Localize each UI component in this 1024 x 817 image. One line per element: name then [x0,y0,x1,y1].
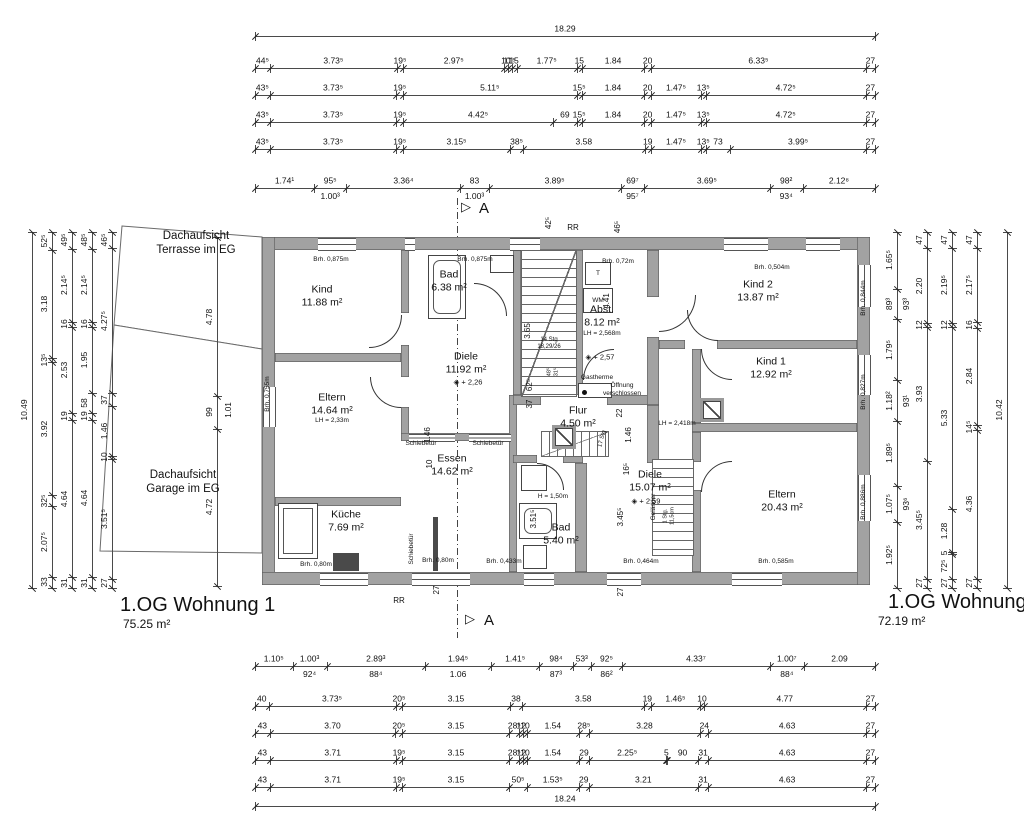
sill-height-note: Brh. 0,80m [300,561,332,569]
dim-label: 3.58 [575,695,592,704]
dim-label: 4.36 [965,496,974,513]
sill-height-note: Brh. 0,844m [860,280,868,315]
dim-label: 1.47⁵ [666,84,686,93]
dim-sub-label: 93³ [902,298,911,310]
dim-label: 3.15⁵ [447,138,467,147]
dim-label: 73 [713,138,722,147]
room-kueche: Küche 7.69 m² [328,508,364,533]
dim-label: 1.84 [605,111,622,120]
dim-label: 2.25⁵ [617,749,637,758]
dim-label: 4.77 [776,695,793,704]
dim-label: 10 [697,695,706,704]
dim-label: 3.15 [448,776,465,785]
dim-label: 1.41⁵ [505,655,525,664]
dim-note: 42⁵ [544,217,554,229]
dim-note: 1.46 [624,427,634,443]
clear-height-note: LH = 2,568m [583,330,620,338]
dim-label: 43 [258,776,267,785]
sill-height-note: Brh. 0,80m [422,557,454,565]
dim-label: 1.54 [545,722,562,731]
dim-label: 95⁵ [324,177,337,186]
dim-label: 4.64 [80,490,89,507]
dim-sub-label: 95⁷ [626,192,639,201]
dim-label: 4.63 [779,722,796,731]
dim-label: 72⁵ [940,560,949,573]
dim-label: 27 [866,749,875,758]
clear-height-note: LH = 2,418m [658,420,695,428]
window [320,573,368,586]
dim-label: 1.95 [80,352,89,369]
dim-note: 37 [525,400,535,409]
fixture-box [490,255,514,273]
dim-label: 27 [940,579,949,588]
dim-label: 43⁵ [256,138,269,147]
kitchen-sink-inner [283,508,313,554]
dim-label: 2.14⁵ [60,275,69,295]
dim-label: 3.18 [40,295,49,312]
dim-label: 15 [575,57,584,66]
rr-label-bottom: RR [393,596,405,606]
wall [717,340,857,349]
dim-label: 16 [965,320,974,329]
window [318,238,356,251]
dim-label: 5.33 [940,410,949,427]
dim-label: 98² [780,177,792,186]
dim-label: 3.71 [324,749,341,758]
dim-label: 27 [866,57,875,66]
railing-label: Geländer [650,494,658,521]
window [524,573,554,586]
dim-label: 31 [80,578,89,587]
dim-label: 33 [40,578,49,587]
dim-label: 27 [866,695,875,704]
dim-label: 1.28 [940,522,949,539]
room-eltern2: Eltern 20.43 m² [761,488,802,513]
dim-note: 31⁵ [554,368,561,376]
dim-chain-line [112,232,113,588]
dim-label: 20 [643,84,652,93]
dim-label: 27 [866,722,875,731]
dim-label: 44⁵ [256,57,269,66]
dim-chain-line [32,232,33,588]
dim-label: 40 [257,695,266,704]
door-arc [701,461,732,492]
dim-label: 10.49 [20,399,29,420]
dim-chain-line [52,232,53,588]
dim-chain-line [255,806,875,807]
dim-label: 32⁵ [40,494,49,507]
dim-label: 1.54 [545,749,562,758]
wall [692,432,701,462]
garage-outline [100,325,262,553]
wall [659,340,685,349]
wall [647,250,659,297]
dim-label: 1.10⁵ [264,655,284,664]
shaft-symbol-inner [555,428,573,446]
dim-label: 3.69⁵ [697,177,717,186]
wall [647,337,659,405]
dim-label: 10.42 [995,399,1004,420]
dim-sub-label: 86² [600,670,612,679]
dim-chain-line [255,706,875,707]
dim-label: 1.89⁵ [885,443,894,463]
dim-label: 10 [100,453,109,462]
dim-label: 4.63 [779,749,796,758]
dim-label: 1.18² [885,391,894,410]
dim-note: 62⁵ [525,379,535,391]
room-kind1: Kind 1 12.92 m² [750,355,791,380]
dim-label: 27 [866,111,875,120]
section-triangle-bottom: ▷ [465,611,475,627]
dim-label: 2.84 [965,368,974,385]
dim-sub-label: 1.06 [450,670,467,679]
dim-label: 3.99⁵ [788,138,808,147]
dim-label: 27 [965,579,974,588]
dim-note: 27 [432,586,442,595]
dim-label: 3.51⁵ [100,509,109,529]
dim-label: 19⁵ [394,57,407,66]
dim-chain-line [255,188,875,189]
dim-label: 16 [60,320,69,329]
window [732,573,782,586]
dim-label: 4.78 [205,308,214,325]
dim-label: 50⁵ [512,776,525,785]
terrace-label: Dachaufsicht Terrasse im EG [156,230,235,258]
dim-label: 27 [915,579,924,588]
dim-chain-line [72,232,73,588]
dim-label: 1.53⁵ [543,776,563,785]
dim-label: 18.29 [554,25,575,34]
dim-chain-line [255,122,875,123]
dim-label: 15 [509,57,518,66]
dim-label: 58 [80,398,89,407]
dim-chain-line [255,149,875,150]
dim-label: 27 [100,579,109,588]
stair-note: 1 Stg. 11,5cm [662,507,675,525]
dim-label: 46⁵ [100,233,109,246]
dim-label: 2.09 [831,655,848,664]
dim-note: 1.46 [423,427,433,443]
dim-label: 3.21 [635,776,652,785]
dim-label: 5.11⁵ [480,84,499,93]
door-arc [687,310,718,341]
dim-label: 29 [579,776,588,785]
dim-note: 46⁵ [613,221,623,233]
dim-sub-label: 93⁴ [780,192,793,201]
sill-height-note: Brh. 0,875m [457,256,492,264]
dim-label: 19 [643,138,652,147]
dim-note: 22 [615,409,625,418]
dim-label: 49⁵ [60,234,69,247]
sill-height-note: Brh. 0,585m [758,558,793,566]
dim-note: 1.01 [224,402,234,418]
stair-note: 14 Stg 18,29/26 [537,337,560,351]
fixture-box [523,545,547,569]
dim-label: 1.46 [100,423,109,440]
dim-label: 13⁵ [40,354,49,367]
dim-label: 27 [866,84,875,93]
room-kind: Kind 11.88 m² [302,283,343,308]
sill-height-note: Brh. 0,72m [602,258,634,266]
sliding-door-label: Schiebetür [408,533,416,564]
dim-label: 24 [700,722,709,731]
dim-label: 27 [866,776,875,785]
room-eltern1: Eltern 14.64 m² [311,391,352,416]
room-diele2: Diele 15.07 m² [629,468,670,493]
dim-chain-line [952,232,953,588]
dim-label: 1.79⁵ [885,340,894,360]
dim-label: 1.07⁵ [885,494,894,514]
dim-label: 20 [643,111,652,120]
apartment2-area: 72.19 m² [878,614,925,628]
wall [275,353,401,362]
sliding-door-label: Schiebetür [472,440,503,448]
dim-label: 4.42⁵ [468,111,488,120]
dim-label: 2.14⁵ [80,275,89,295]
door-arc [701,349,732,380]
dim-label: 90 [678,749,687,758]
room-diele1: Diele 11.92 m² [446,350,487,375]
dim-sub-label: 87³ [550,670,562,679]
dim-label: 83 [470,177,479,186]
dim-note: 10 [425,460,435,469]
dim-label: 20⁵ [392,722,405,731]
dim-label: 13⁵ [697,84,710,93]
dim-sub-label: 93¹ [902,394,911,406]
dim-label: 2.53 [60,362,69,379]
dim-label: 19⁵ [393,138,406,147]
sill-height-note: Brh. 0,886m [860,484,868,519]
dim-label: 4.33⁷ [686,655,706,664]
dim-label: 31 [60,578,69,587]
dim-sub-label: 88⁴ [369,670,382,679]
dim-label: 1.77⁵ [537,57,557,66]
dim-label: 2.19⁵ [940,275,949,295]
dim-label: 15⁵ [573,111,586,120]
dim-label: 13⁵ [697,111,710,120]
room-essen: Essen 14.62 m² [431,452,472,477]
dim-label: 3.36⁴ [393,177,413,186]
apartment1-title: 1.OG Wohnung 1 [120,594,275,617]
window [607,573,641,586]
dim-note: 27 [616,588,626,597]
garage-label: Dachaufsicht Garage im EG [146,469,220,497]
dim-note: 48⁵ [547,368,554,376]
dim-label: 3.73⁵ [323,57,343,66]
dim-label: 19 [60,412,69,421]
dim-label: 3.73⁵ [323,138,343,147]
dim-sub-label: 93⁶ [902,497,911,510]
dim-label: 2.17⁵ [965,275,974,295]
dim-label: 3.28 [636,722,653,731]
dim-chain-line [92,232,93,588]
dim-label: 2.20 [915,277,924,294]
room-flur: Flur 4.50 m² [560,404,596,429]
dim-label: 4.64 [60,490,69,507]
wall [509,395,517,572]
dim-label: 3.15 [448,722,465,731]
window [405,238,415,251]
dim-label: 47 [915,235,924,244]
apartment1-area: 75.25 m² [123,617,170,631]
dim-label: 4.27⁵ [100,311,109,331]
dim-chain-line [255,666,875,667]
floorplan-canvas: TWM 18.2944⁵3.73⁵19⁵2.97⁵1011⁵151.77⁵151… [0,0,1024,817]
dim-chain-line [255,95,875,96]
dim-label: 92⁵ [600,655,613,664]
door-arc [369,315,402,348]
wall [575,463,587,572]
dim-label: 89³ [885,298,894,310]
dim-label: 15⁵ [573,84,586,93]
dim-label: 19⁵ [393,84,406,93]
dim-chain-line [255,787,875,788]
dim-label: 6.33⁵ [748,57,768,66]
gastherme-dot [582,390,587,395]
section-triangle-top: ▷ [461,199,471,215]
dim-label: 2.07⁵ [40,532,49,552]
dim-chain-line [927,232,928,588]
dim-label: 27 [866,138,875,147]
kitchen-sink [278,503,318,559]
dim-label: 19⁵ [393,111,406,120]
dim-label: 43 [258,749,267,758]
dim-note: 3.45⁵ [616,508,626,527]
dim-label: 52⁵ [40,234,49,247]
dim-chain-line [977,232,978,588]
dim-label: 10 [520,749,529,758]
opening-closed-note: Öffnung verschlossen [603,382,641,398]
dim-label: 20 [643,57,652,66]
dim-label: 1.00³ [300,655,319,664]
dim-label: 1.74¹ [275,177,294,186]
wall [692,423,857,432]
dim-chain-line [1007,232,1008,588]
room-kind2: Kind 2 13.87 m² [737,278,778,303]
dim-label: 99 [205,408,214,417]
dim-label: 1.92⁵ [885,545,894,565]
dim-label: 3.93 [915,386,924,403]
window [806,238,840,251]
dim-label: 3.73⁵ [323,84,343,93]
dim-label: 19 [80,412,89,421]
dim-label: 5 [940,551,949,556]
dim-label: 3.73⁵ [323,111,343,120]
wall [401,345,409,377]
dim-label: 1.46⁵ [665,695,685,704]
dim-label: 69⁷ [626,177,639,186]
wall [513,250,521,395]
dim-label: 4.72⁵ [776,84,796,93]
dim-label: 3.70 [324,722,341,731]
dim-label: 1.65⁵ [885,250,894,270]
section-letter-top: A [479,200,489,218]
dim-label: 20⁵ [392,695,405,704]
dim-label: 4.72⁵ [776,111,796,120]
dim-label: 2.12⁸ [829,177,849,186]
dim-label: 47 [940,235,949,244]
dim-label: 43⁵ [256,84,269,93]
dim-label: 3.15 [448,749,465,758]
dim-label: 1.47⁵ [666,138,686,147]
dim-sub-label: 88⁴ [780,670,793,679]
door-arc [370,377,401,408]
dim-label: 1.00⁷ [777,655,797,664]
dim-label: 4.72 [205,499,214,516]
shaft-symbol [700,398,724,422]
sill-height-note: Brh. 0,827m [860,374,868,409]
dim-label: 38⁵ [510,138,523,147]
dim-label: 31 [698,749,707,758]
dim-sub-label: 92⁴ [303,670,316,679]
dim-label: 31 [698,776,707,785]
window [724,238,768,251]
dim-label: 1.94⁵ [448,655,468,664]
dim-label: 1.84 [605,57,622,66]
dim-label: 16 [80,319,89,328]
shaft-symbol-inner [703,401,721,419]
dim-label: 14⁵ [965,421,974,434]
door-arc [474,283,507,316]
dim-chain-line [255,36,875,37]
dim-label: 10 [520,722,529,731]
dim-label: 69 [560,111,569,120]
sill-height-note: Brh. 0,433m [486,558,521,566]
dim-label: 13⁵ [697,138,710,147]
dim-note: 3.65 [523,323,533,339]
dim-label: 2.97⁵ [444,57,464,66]
rr-label-top: RR [567,223,579,233]
dim-label: 5 [664,749,669,758]
level-marker: ◈ + 2,26 [454,378,483,387]
dim-chain-line [255,733,875,734]
dim-label: 3.92 [40,421,49,438]
dim-label: 47 [965,235,974,244]
dim-label: 53³ [576,655,588,664]
dim-label: 28⁵ [577,722,590,731]
dim-chain-line [217,237,218,586]
dim-note: 4.41 [602,293,612,309]
sill-height-note: Brh. 0,755m [264,376,272,411]
wall [513,455,537,463]
dim-label: 3.58 [576,138,593,147]
height-note: H = 1,50m [538,493,568,501]
dim-label: 19⁵ [393,749,406,758]
dim-label: 3.15 [448,695,465,704]
dim-label: 29 [579,749,588,758]
clear-height-note: LH = 2,33m [315,417,349,425]
gastherme-label: Gastherme [581,374,613,382]
section-letter-bottom: A [484,612,494,630]
dim-label: 4.63 [779,776,796,785]
dim-note: 16⁵ [622,463,632,475]
dim-chain-line [255,760,875,761]
dim-label: 1.84 [605,84,622,93]
dim-chain-line [255,68,875,69]
dim-label: 18.24 [554,795,575,804]
dim-label: 43⁵ [256,111,269,120]
fixture-solid [333,553,359,571]
dim-label: 3.73⁵ [322,695,342,704]
apartment2-title: 1.OG Wohnung 2 [888,591,1024,614]
dim-label: 2.89³ [366,655,385,664]
dim-label: 3.71 [324,776,341,785]
dim-label: 37 [100,395,109,404]
roof-outlines [92,218,264,588]
level-marker: ◈ + 2,57 [586,353,615,362]
sill-height-note: Brh. 0,875m [313,256,348,264]
dim-note: 3.51⁵ [529,510,539,529]
